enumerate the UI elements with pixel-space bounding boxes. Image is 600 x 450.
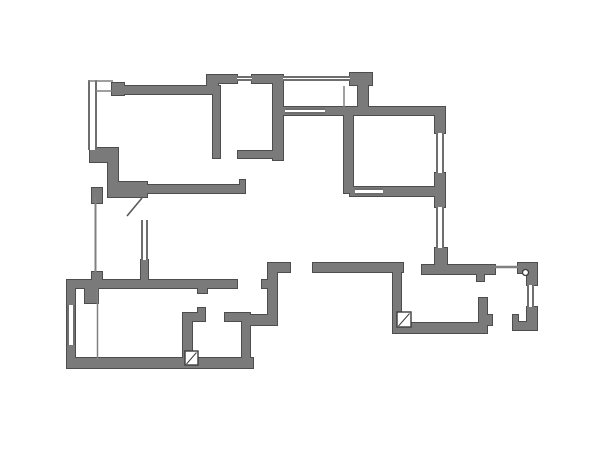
window <box>436 207 444 248</box>
wall-segment <box>268 263 277 317</box>
wall-segment <box>112 86 213 94</box>
wall-segment <box>344 115 353 193</box>
wall-segment <box>113 182 147 197</box>
wall-segment <box>207 75 237 83</box>
wall-segment <box>141 260 148 282</box>
wall-segment <box>238 151 273 158</box>
wall-segment <box>513 315 518 322</box>
wall-segment <box>67 280 237 288</box>
wall-segment <box>479 298 487 325</box>
wall-segment <box>90 148 113 162</box>
wall-segment <box>213 86 220 158</box>
wall-segment <box>350 73 372 85</box>
window <box>355 188 383 195</box>
floor-plan-canvas <box>0 0 600 450</box>
symbol-overlay <box>0 0 600 450</box>
window <box>436 133 444 173</box>
door-leaf-line <box>127 198 142 216</box>
wall-segment <box>422 265 495 274</box>
wall-segment <box>198 288 207 293</box>
wall-segment <box>435 107 445 133</box>
window <box>237 76 252 81</box>
wall-segment <box>277 263 290 272</box>
wall-segment <box>435 248 447 265</box>
window <box>141 220 148 260</box>
wall-segment <box>513 322 537 330</box>
wall-segment <box>518 263 537 273</box>
wall-segment <box>487 315 492 325</box>
wall-segment <box>183 315 192 363</box>
wall-segment <box>435 173 445 207</box>
wall-segment <box>477 274 484 281</box>
window <box>67 305 75 345</box>
wall-segment <box>527 273 537 285</box>
wall-segment <box>358 85 368 107</box>
wall-segment <box>273 75 283 160</box>
wall-segment <box>92 188 102 203</box>
wall-segment <box>393 323 487 333</box>
wall-segment <box>240 180 245 185</box>
wall-segment <box>198 308 205 313</box>
wall-segment <box>183 313 205 321</box>
wall-segment <box>527 307 537 322</box>
wall-segment <box>248 315 277 325</box>
wall-segment <box>67 358 253 368</box>
wall-segment <box>85 288 98 303</box>
wall-segment <box>313 263 403 272</box>
window <box>283 76 350 81</box>
window <box>88 80 97 150</box>
window <box>285 108 325 114</box>
window <box>527 285 534 307</box>
wall-segment <box>262 280 268 288</box>
wall-segment <box>147 185 245 193</box>
